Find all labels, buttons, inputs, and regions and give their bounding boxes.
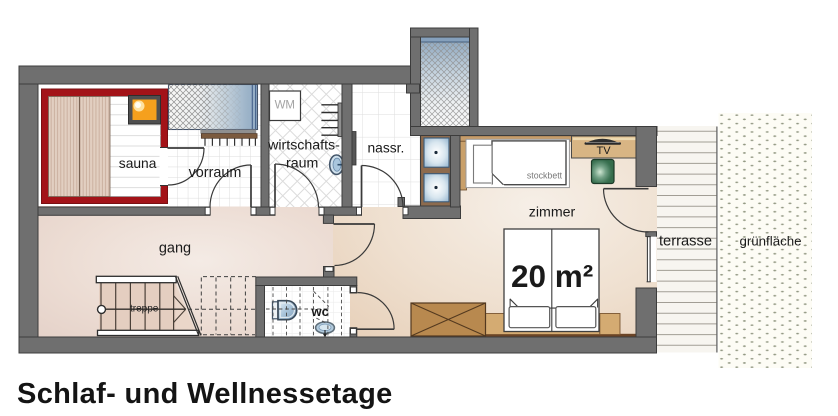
svg-text:zimmer: zimmer bbox=[529, 205, 576, 221]
svg-text:20: 20 bbox=[511, 258, 546, 294]
svg-text:treppe: treppe bbox=[130, 304, 159, 315]
svg-text:stockbett: stockbett bbox=[527, 171, 563, 181]
svg-text:raum: raum bbox=[286, 156, 318, 172]
svg-text:sauna: sauna bbox=[119, 156, 157, 171]
svg-text:wirtschafts-: wirtschafts- bbox=[267, 138, 340, 154]
svg-text:terrasse: terrasse bbox=[659, 234, 712, 250]
svg-text:WM: WM bbox=[275, 100, 295, 112]
svg-text:TV: TV bbox=[596, 145, 611, 157]
svg-text:Schlaf- und Wellnessetage: Schlaf- und Wellnessetage bbox=[17, 378, 393, 410]
svg-text:gang: gang bbox=[159, 241, 191, 257]
svg-text:grünfläche: grünfläche bbox=[739, 234, 801, 249]
svg-text:m²: m² bbox=[555, 258, 594, 294]
svg-text:nassr.: nassr. bbox=[367, 141, 404, 156]
svg-text:wc: wc bbox=[311, 304, 329, 319]
svg-text:vorraum: vorraum bbox=[189, 165, 242, 181]
